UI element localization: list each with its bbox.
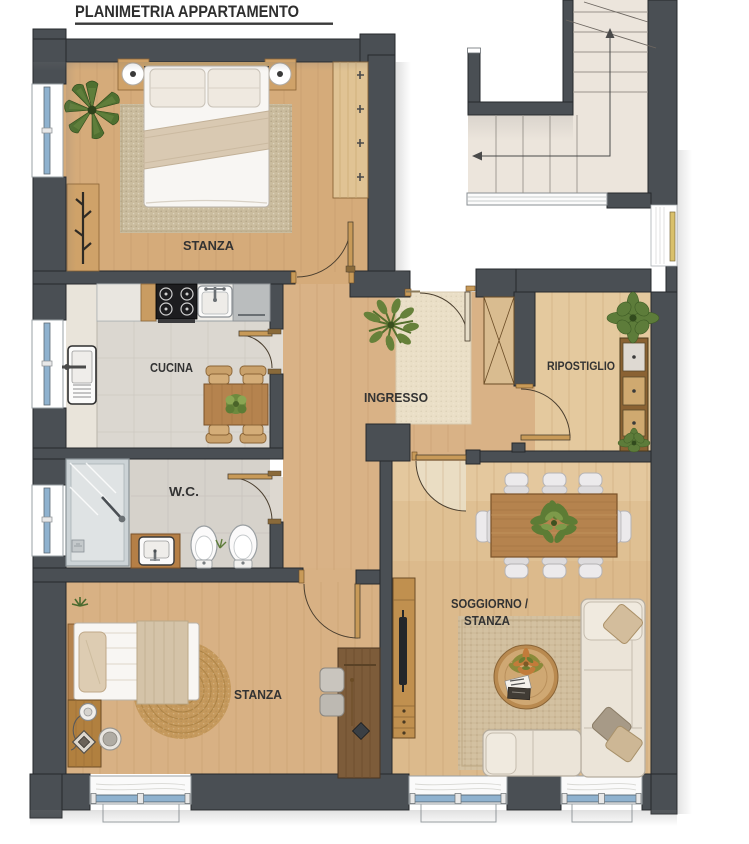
svg-text:PLANIMETRIA APPARTAMENTO: PLANIMETRIA APPARTAMENTO [75,2,299,21]
svg-text:CUCINA: CUCINA [150,360,194,375]
svg-text:SOGGIORNO /: SOGGIORNO / [451,596,528,611]
svg-text:STANZA: STANZA [234,687,283,702]
svg-text:W.C.: W.C. [169,484,199,499]
svg-text:STANZA: STANZA [183,238,235,253]
svg-text:STANZA: STANZA [464,613,511,628]
svg-text:RIPOSTIGLIO: RIPOSTIGLIO [547,359,615,373]
svg-text:INGRESSO: INGRESSO [364,390,428,405]
